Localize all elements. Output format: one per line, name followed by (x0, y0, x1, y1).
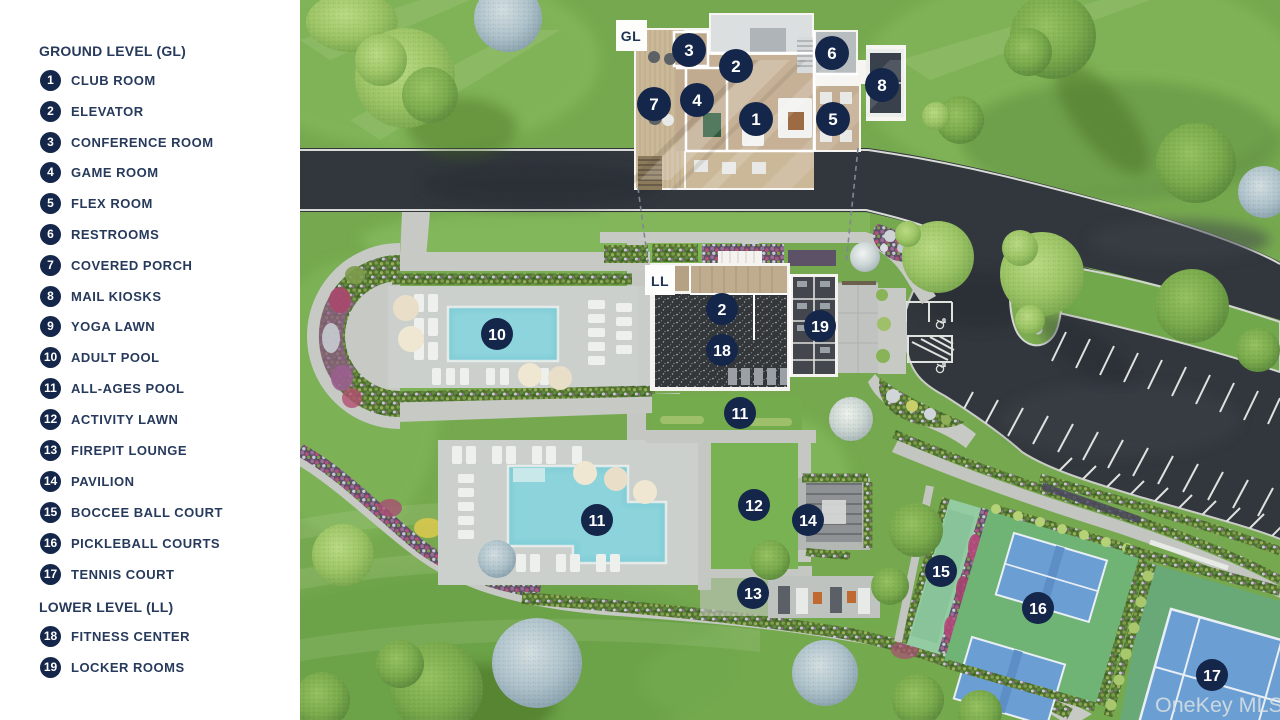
svg-text:OneKey MLS: OneKey MLS (1155, 693, 1280, 717)
svg-text:6: 6 (827, 44, 836, 63)
svg-text:3: 3 (684, 41, 693, 60)
svg-text:19: 19 (811, 319, 829, 336)
svg-text:LL: LL (651, 273, 669, 289)
svg-text:17: 17 (1203, 668, 1221, 685)
svg-text:16: 16 (1029, 601, 1047, 618)
svg-text:12: 12 (745, 498, 763, 515)
svg-text:15: 15 (932, 564, 950, 581)
svg-text:1: 1 (751, 110, 760, 129)
svg-text:11: 11 (732, 406, 749, 423)
svg-text:4: 4 (692, 91, 702, 110)
svg-text:5: 5 (828, 110, 837, 129)
svg-text:10: 10 (488, 327, 506, 344)
svg-text:8: 8 (877, 76, 886, 95)
svg-text:11: 11 (589, 513, 606, 530)
svg-text:GL: GL (621, 28, 641, 44)
svg-text:18: 18 (713, 343, 731, 360)
svg-text:2: 2 (718, 302, 727, 319)
svg-text:7: 7 (649, 95, 658, 114)
svg-text:13: 13 (744, 586, 762, 603)
svg-text:14: 14 (799, 513, 817, 530)
svg-text:2: 2 (731, 57, 740, 76)
